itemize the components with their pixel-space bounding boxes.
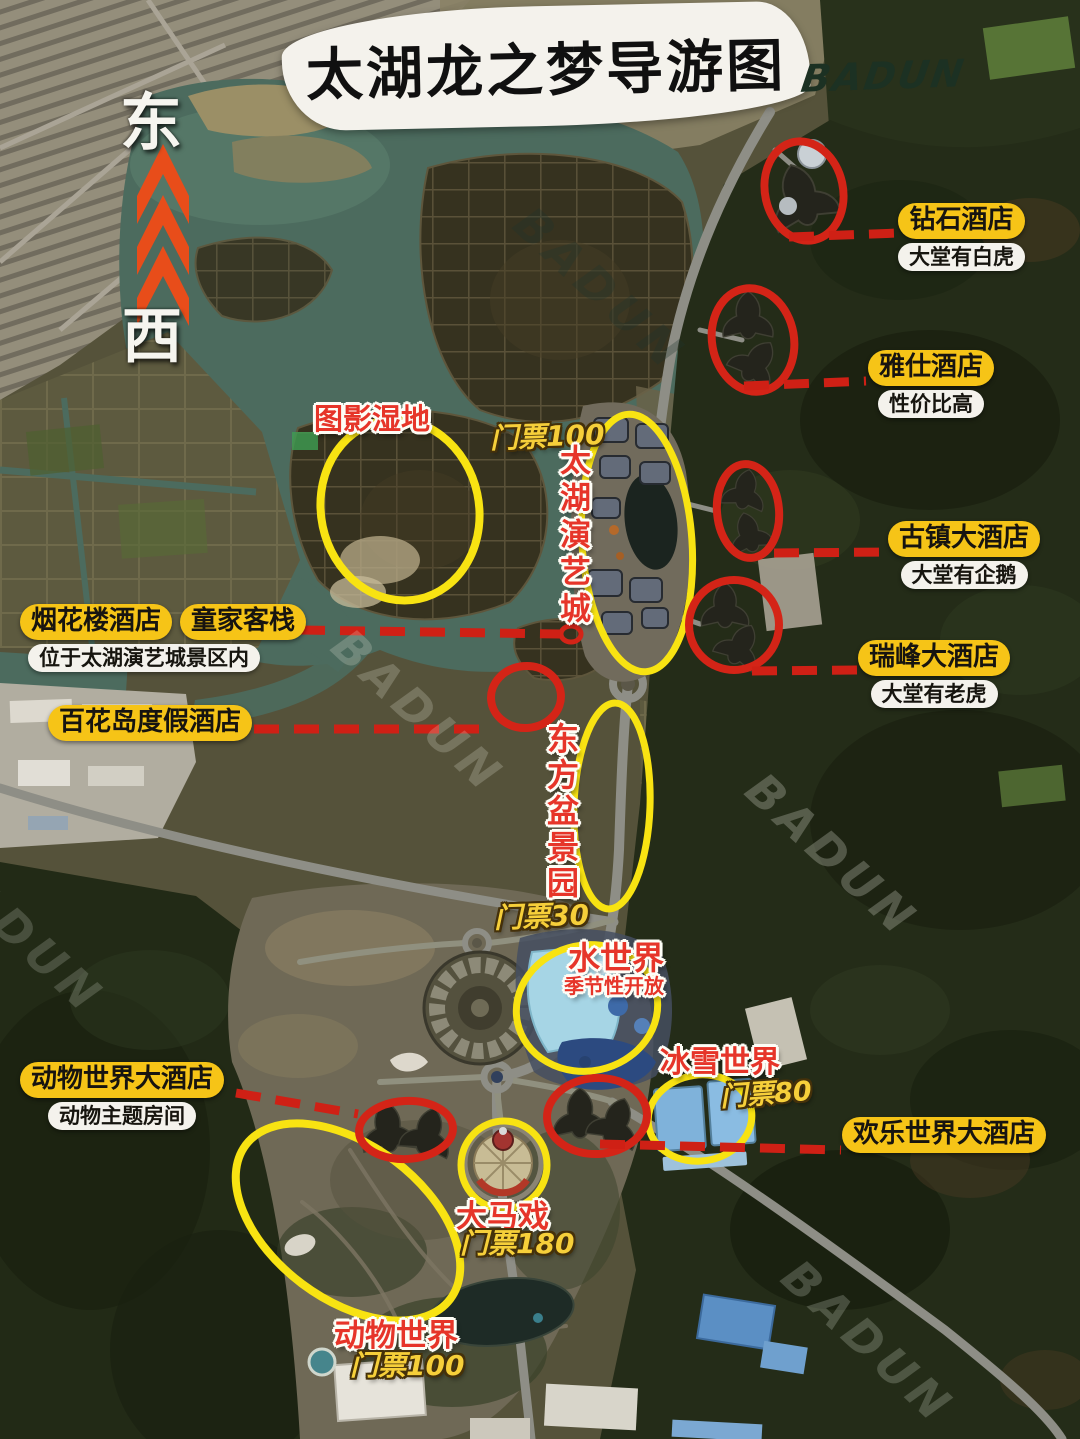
hotel-note-pill: 大堂有白虎 xyxy=(898,243,1025,271)
hotel-note-pill: 位于太湖演艺城景区内 xyxy=(28,644,260,672)
hotel-name-pill: 欢乐世界大酒店 xyxy=(842,1117,1046,1153)
hotel-name-pill: 烟花楼酒店 xyxy=(20,604,172,640)
terrain-fields-mid xyxy=(636,386,744,684)
brand-logo: BADUN xyxy=(798,51,968,101)
terrain-forest-right xyxy=(600,120,1080,1439)
hotel-name-pill: 动物世界大酒店 xyxy=(20,1062,224,1098)
terrain-farmland-left xyxy=(0,332,300,648)
leader-huanle-hotel xyxy=(600,1144,841,1150)
compass-west: 西 xyxy=(122,288,182,375)
terrain-green-field xyxy=(983,16,1075,79)
baihuadao-ring xyxy=(488,663,563,731)
hotel-name2-pill: 童家客栈 xyxy=(180,604,306,640)
compass-east: 东 xyxy=(120,72,182,162)
hotel-note-pill: 大堂有老虎 xyxy=(871,680,998,708)
callout-huanle-hotel: 欢乐世界大酒店 xyxy=(842,1117,1046,1153)
callout-baihuadao-hotel: 百花岛度假酒店 xyxy=(48,705,252,741)
leader-ruifeng xyxy=(752,670,860,671)
leader-guzhen xyxy=(774,552,890,553)
tour-guide-map: BADUN BADUN BADUN BADUN BADUN 太湖龙之梦导游图 B… xyxy=(0,0,1080,1439)
hotel-name-pill: 雅仕酒店 xyxy=(868,350,994,386)
dashed-leader-lines xyxy=(236,233,899,1150)
label-dongfang-penjingyuan: 东方盆景园 xyxy=(538,722,584,902)
label-tuying-shidi: 图影湿地 xyxy=(314,396,430,438)
note-shui-shijie: 季节性开放 xyxy=(564,970,664,999)
leader-yashi xyxy=(744,381,866,386)
terrain-wetlands xyxy=(196,154,693,681)
watermark-right: BADUN xyxy=(719,747,946,964)
page-title: 太湖龙之梦导游图 xyxy=(305,20,787,112)
title-banner: 太湖龙之梦导游图 xyxy=(281,0,811,131)
dongwu-hotel-ring xyxy=(358,1099,455,1162)
zuanshi-ring xyxy=(755,134,852,248)
watermark-mid: BADUN xyxy=(305,603,532,820)
hotel-name-pill: 百花岛度假酒店 xyxy=(48,705,252,741)
callout-yanhualou-hotel: 烟花楼酒店 童家客栈 位于太湖演艺城景区内 xyxy=(20,604,306,672)
hotel-note-pill: 性价比高 xyxy=(878,390,984,418)
yashi-ring xyxy=(704,282,803,399)
hotel-name-pill: 瑞峰大酒店 xyxy=(858,640,1010,676)
callout-ruifeng-hotel: 瑞峰大酒店 大堂有老虎 xyxy=(858,640,1010,708)
huanle-hotel-ring xyxy=(545,1075,649,1156)
ticket-penjingyuan: 门票30 xyxy=(493,893,589,936)
ticket-bingxue: 门票80 xyxy=(719,1069,813,1114)
hotel-name-row: 烟花楼酒店 童家客栈 xyxy=(20,604,306,640)
ticket-dongwu-shijie: 门票100 xyxy=(350,1344,464,1384)
hotel-note-pill: 大堂有企鹅 xyxy=(901,561,1028,589)
leader-zuanshi xyxy=(789,233,899,237)
callout-yashi-hotel: 雅仕酒店 性价比高 xyxy=(868,350,994,418)
terrain-forest-topright xyxy=(820,0,1080,330)
guzhen-ring xyxy=(713,461,783,560)
hotel-name-pill: 古镇大酒店 xyxy=(888,521,1040,557)
hotel-name-pill: 钻石酒店 xyxy=(898,203,1024,239)
watermark-lake: BADUN xyxy=(487,181,714,398)
ruifeng-ring xyxy=(689,580,779,670)
callout-guzhen-hotel: 古镇大酒店 大堂有企鹅 xyxy=(888,521,1040,589)
callout-zuanshi-hotel: 钻石酒店 大堂有白虎 xyxy=(898,203,1025,271)
watermark-bottom: BADUN xyxy=(755,1234,982,1439)
callout-dongwu-hotel: 动物世界大酒店 动物主题房间 xyxy=(20,1062,224,1130)
label-taihu-yanyicheng: 太湖演艺城 xyxy=(550,444,595,629)
watermark-left-edge: BADUN xyxy=(0,824,131,1041)
ticket-da-maxi: 门票180 xyxy=(460,1222,574,1262)
hotel-note-pill: 动物主题房间 xyxy=(48,1102,196,1130)
leader-dongwu-hotel xyxy=(236,1093,358,1114)
